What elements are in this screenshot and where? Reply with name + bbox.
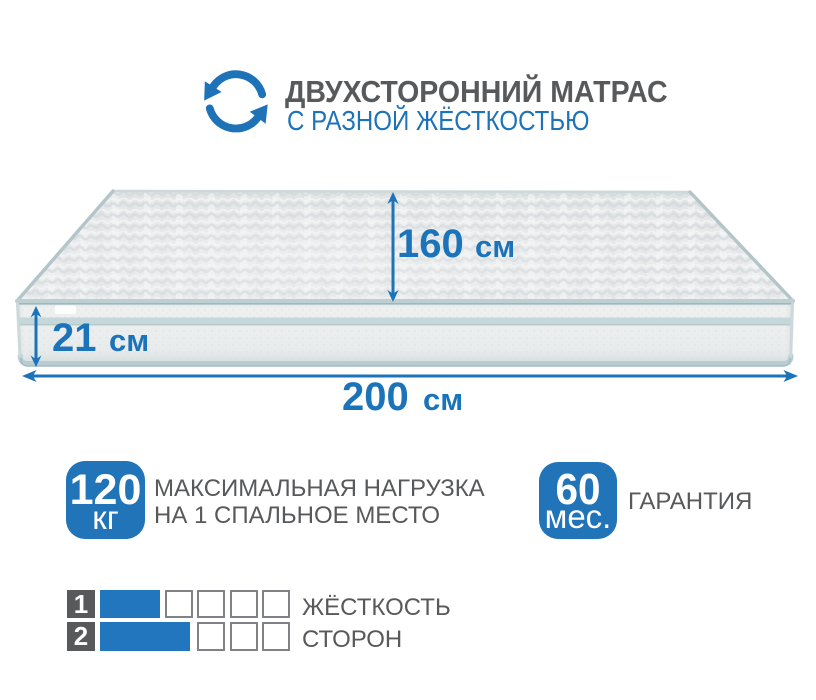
svg-text:200: 200 bbox=[342, 375, 409, 419]
svg-text:см: см bbox=[475, 229, 515, 264]
svg-text:160: 160 bbox=[397, 222, 464, 266]
svg-text:см: см bbox=[423, 382, 463, 417]
svg-text:21: 21 bbox=[52, 316, 97, 360]
svg-text:см: см bbox=[109, 323, 149, 358]
